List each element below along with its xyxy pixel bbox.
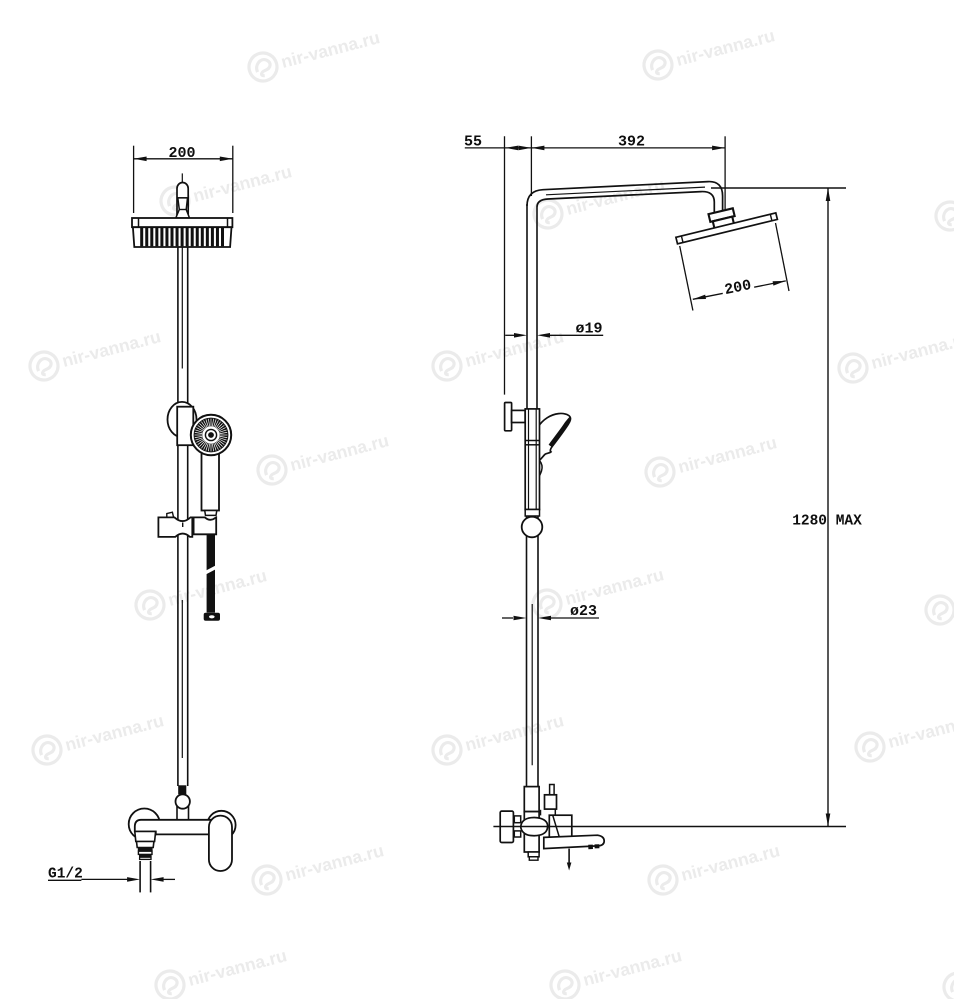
svg-text:1280 MAX: 1280 MAX: [792, 514, 862, 530]
svg-text:ø23: ø23: [570, 603, 597, 620]
svg-text:200: 200: [168, 145, 195, 162]
svg-text:ø19: ø19: [576, 321, 603, 338]
